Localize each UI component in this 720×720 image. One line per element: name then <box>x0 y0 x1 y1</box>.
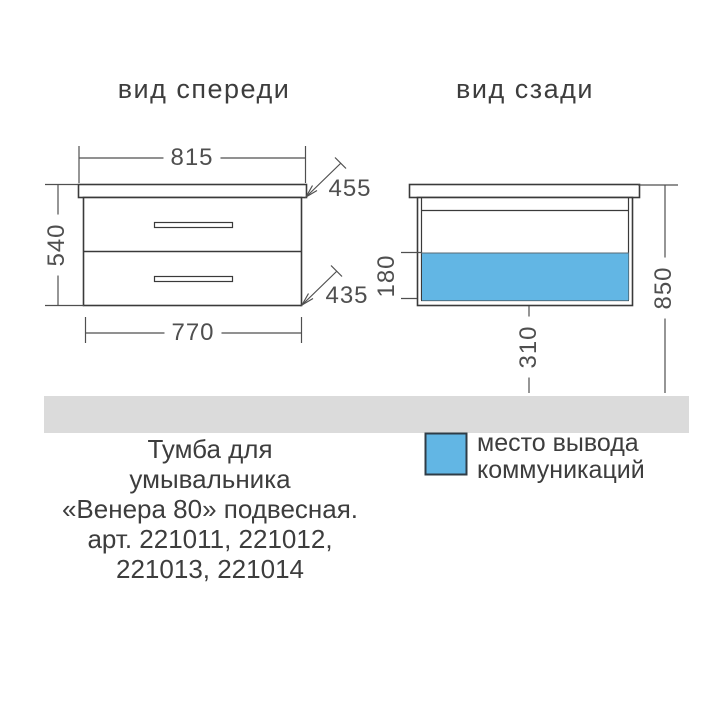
caption-line: умывальника <box>40 464 380 494</box>
technical-drawing <box>0 0 720 720</box>
product-caption: Тумба для умывальника «Венера 80» подвес… <box>40 434 380 584</box>
legend-swatch <box>426 434 467 475</box>
floor-band <box>44 396 689 433</box>
rear-view-drawing <box>410 185 640 306</box>
front-countertop <box>79 185 307 198</box>
dim-outlet-zone-offset: 310 <box>515 316 543 377</box>
drawer-handle-top <box>155 223 233 228</box>
rear-view-title: вид сзади <box>415 74 635 105</box>
legend-label-line1: место вывода <box>477 430 645 457</box>
legend-label-line2: коммуникаций <box>477 457 645 484</box>
dim-total-height: 850 <box>650 257 678 318</box>
caption-line: «Венера 80» подвесная. <box>40 494 380 524</box>
caption-line: 221013, 221014 <box>40 554 380 584</box>
caption-line: Тумба для <box>40 434 380 464</box>
dim-body-depth: 435 <box>323 282 370 310</box>
dim-height: 540 <box>43 214 71 275</box>
dim-outlet-zone-height: 180 <box>373 245 401 306</box>
rear-countertop <box>410 185 640 198</box>
dim-body-width: 770 <box>164 319 221 347</box>
outlet-zone-highlight <box>422 253 629 301</box>
front-view-title: вид спереди <box>94 74 314 105</box>
legend-label: место вывода коммуникаций <box>477 430 645 484</box>
dim-countertop-width: 815 <box>163 144 220 172</box>
front-view-drawing <box>79 185 307 306</box>
product-dimension-sheet: вид спереди вид сзади 815 540 455 435 77… <box>0 0 720 720</box>
drawer-handle-bottom <box>155 277 233 282</box>
dim-countertop-depth: 455 <box>326 175 373 203</box>
caption-line: арт. 221011, 221012, <box>40 524 380 554</box>
